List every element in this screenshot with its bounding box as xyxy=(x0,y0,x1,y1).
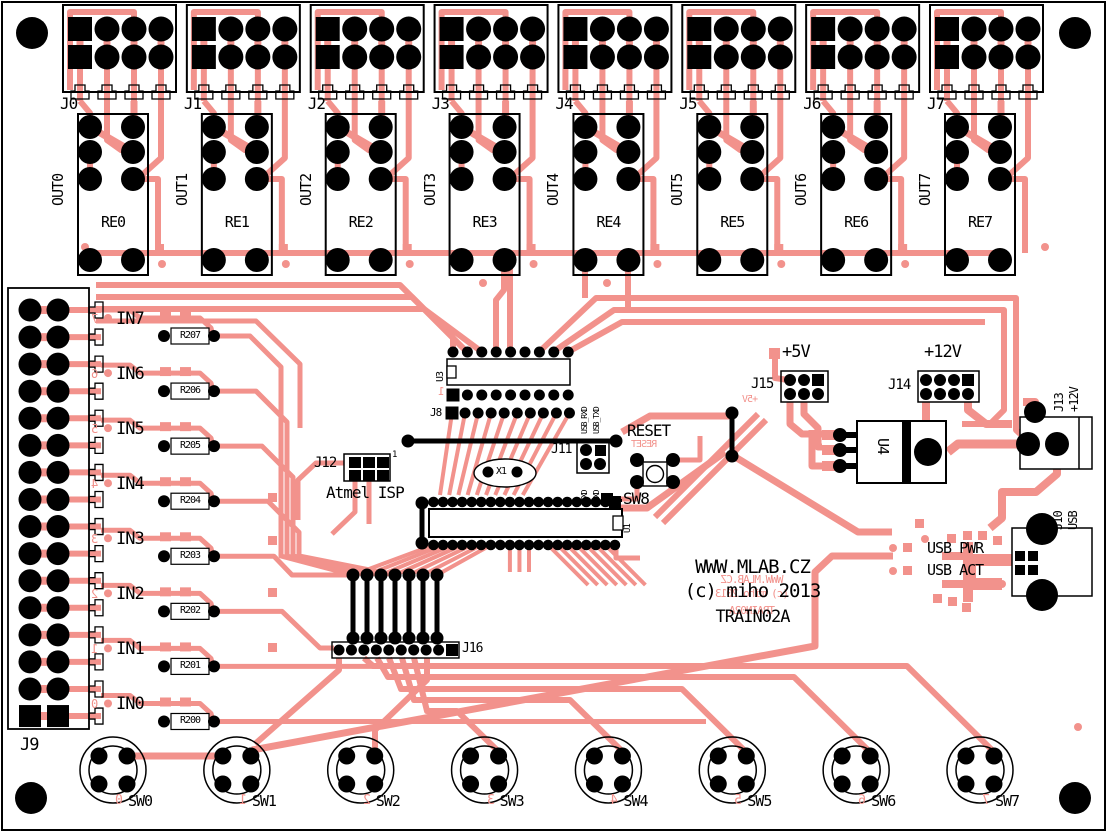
resistor-label: R200 xyxy=(171,716,209,726)
resistor-label: R203 xyxy=(171,551,209,561)
out-label: OUT6 xyxy=(794,144,809,206)
connector-label: J6 xyxy=(803,96,820,112)
channel-number-mirror: 2 xyxy=(92,588,98,600)
title-copyright: (c) miho 2013 xyxy=(650,582,855,601)
rxd-label: RXD xyxy=(593,478,601,502)
switch-number-mirror: 4 xyxy=(611,794,618,807)
reset-label: RESET xyxy=(627,423,670,439)
input-label: IN1 xyxy=(116,641,144,658)
relay-label: RE5 xyxy=(697,215,767,230)
input-label: IN4 xyxy=(116,476,144,493)
connector-label: J5 xyxy=(679,96,696,112)
channel-number-mirror: 5 xyxy=(92,423,98,435)
isp-label: J12 xyxy=(314,456,336,470)
jack-label: J13 xyxy=(1053,374,1065,412)
connector-label: J1 xyxy=(184,96,201,112)
jumper-block-label: J16 xyxy=(462,642,482,655)
driver-label: U3 xyxy=(436,362,446,382)
relay-label: RE0 xyxy=(78,215,148,230)
switch-label: SW6 xyxy=(871,794,895,809)
switch-label: SW4 xyxy=(623,794,647,809)
out-label: OUT0 xyxy=(51,144,66,206)
relay-label: RE1 xyxy=(202,215,272,230)
out-label: OUT5 xyxy=(670,144,685,206)
pcb-board: J0RE0OUT0J1RE1OUT1J2RE2OUT2J3RE3OUT3J4RE… xyxy=(0,0,1107,832)
title-product: TRAIN02A xyxy=(650,609,855,626)
resistor-label: R205 xyxy=(171,441,209,451)
v5-mirror: +5V xyxy=(743,395,758,405)
channel-number-mirror: 7 xyxy=(92,313,98,325)
switch-label: SW3 xyxy=(500,794,524,809)
v5-label: +5V xyxy=(782,344,810,361)
reset-switch-label: SW8 xyxy=(623,491,649,507)
relay-label: RE2 xyxy=(326,215,396,230)
channel-number-mirror: 1 xyxy=(92,643,98,655)
serial-label: J11 xyxy=(551,443,571,456)
usb-txd-label: USB_TXD xyxy=(593,388,601,434)
relay-label: RE7 xyxy=(945,215,1015,230)
channel-number-mirror: 4 xyxy=(92,478,98,490)
relay-label: RE3 xyxy=(450,215,520,230)
relay-label: RE4 xyxy=(573,215,643,230)
input-label: IN5 xyxy=(116,421,144,438)
j14-label: J14 xyxy=(888,378,910,392)
usb-type-label: USB xyxy=(1067,496,1079,530)
j8-label: J8 xyxy=(430,407,441,418)
channel-number-mirror: 3 xyxy=(92,533,98,545)
j15-label: J15 xyxy=(751,377,773,391)
txd-label: TXD xyxy=(581,478,589,502)
switch-label: SW7 xyxy=(995,794,1019,809)
title-site: WWW.MLAB.CZ xyxy=(650,558,855,577)
usb-rxd-label: USB_RXD xyxy=(581,388,589,434)
out-label: OUT7 xyxy=(918,144,933,206)
connector-label: J7 xyxy=(927,96,944,112)
connector-label: J4 xyxy=(555,96,572,112)
mcu-label: U1 xyxy=(624,515,633,533)
connector-label: J0 xyxy=(60,96,77,112)
out-label: OUT4 xyxy=(546,144,561,206)
out-label: OUT1 xyxy=(175,144,190,206)
switch-number-mirror: 0 xyxy=(116,794,123,807)
resistor-label: R201 xyxy=(171,661,209,671)
connector-label: J2 xyxy=(308,96,325,112)
usb-act-led-label: USB ACT xyxy=(927,563,983,578)
usb-connector-label: J10 xyxy=(1052,496,1064,530)
switch-label: SW5 xyxy=(747,794,771,809)
copper-and-silk-art xyxy=(0,0,1107,832)
connector-label: J3 xyxy=(432,96,449,112)
switch-label: SW0 xyxy=(128,794,152,809)
channel-number-mirror: 6 xyxy=(92,368,98,380)
input-label: IN6 xyxy=(116,366,144,383)
switch-number-mirror: 1 xyxy=(240,794,247,807)
relay-label: RE6 xyxy=(821,215,891,230)
out-label: OUT2 xyxy=(299,144,314,206)
input-connector-label: J9 xyxy=(20,737,38,754)
reset-mirror: RESET xyxy=(632,440,657,450)
regulator-label: U4 xyxy=(875,438,890,468)
switch-number-mirror: 6 xyxy=(859,794,866,807)
input-label: IN0 xyxy=(116,696,144,713)
component-outlines xyxy=(8,5,1079,803)
switch-number-mirror: 2 xyxy=(364,794,371,807)
switch-number-mirror: 3 xyxy=(488,794,495,807)
input-label: IN2 xyxy=(116,586,144,603)
jack-voltage-label: +12V xyxy=(1068,374,1080,412)
v12-label: +12V xyxy=(924,344,961,361)
input-label: IN7 xyxy=(116,311,144,328)
usb-pwr-led-label: USB PWR xyxy=(927,541,983,556)
channel-number-mirror: 0 xyxy=(92,698,98,710)
isp-pin1: 1 xyxy=(392,451,396,460)
resistor-label: R207 xyxy=(171,331,209,341)
out-label: OUT3 xyxy=(423,144,438,206)
resistor-label: R206 xyxy=(171,386,209,396)
crystal-label: X1 xyxy=(496,467,506,477)
resistor-label: R202 xyxy=(171,606,209,616)
switch-label: SW1 xyxy=(252,794,276,809)
switch-label: SW2 xyxy=(376,794,400,809)
switch-number-mirror: 5 xyxy=(735,794,742,807)
isp-caption: Atmel ISP xyxy=(326,485,404,501)
resistor-label: R204 xyxy=(171,496,209,506)
input-label: IN3 xyxy=(116,531,144,548)
j8-pin1-mirror: 1 xyxy=(439,386,445,397)
switch-number-mirror: 7 xyxy=(983,794,990,807)
